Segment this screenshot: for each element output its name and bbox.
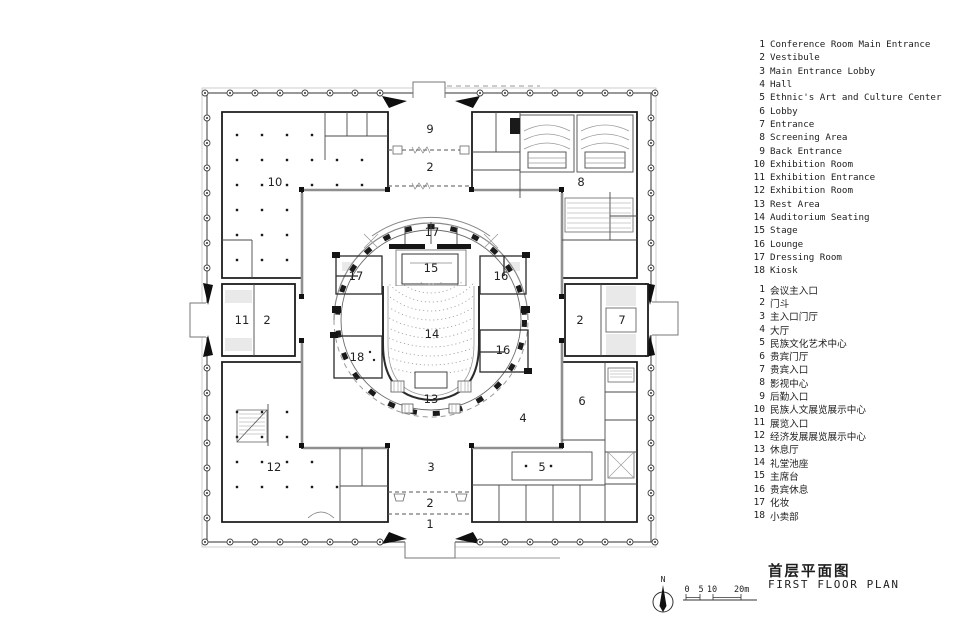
legend-item-label: Entrance	[770, 119, 814, 130]
legend-item-label: 小卖部	[770, 509, 799, 523]
legend-item: 14Auditorium Seating	[748, 211, 941, 224]
column-dot-icon	[554, 92, 556, 94]
legend-item-label: Exhibition Entrance	[770, 172, 875, 183]
column-grid-dot	[236, 159, 238, 161]
legend-item-number: 13	[748, 199, 765, 210]
legend-item-label: Conference Room Main Entrance	[770, 39, 930, 50]
column-grid-dot	[286, 486, 288, 488]
legend-item-label: 主席台	[770, 469, 799, 483]
legend-item-number: 17	[748, 497, 765, 508]
room-number-label: 17	[425, 225, 440, 239]
legend-item-number: 15	[748, 470, 765, 481]
room-number-label: 15	[424, 261, 439, 275]
legend-item: 5民族文化艺术中心	[748, 336, 866, 349]
legend-item-label: 经济发展展览展示中心	[770, 429, 866, 443]
column-grid-dot	[261, 486, 263, 488]
column-dot-icon	[579, 541, 581, 543]
column-dot-icon	[304, 92, 306, 94]
column-dot-icon	[479, 92, 481, 94]
legend-english: 1Conference Room Main Entrance2Vestibule…	[748, 38, 941, 277]
legend-item-label: Vestibule	[770, 52, 820, 63]
legend-item-number: 4	[748, 79, 765, 90]
column-grid-dot	[236, 461, 238, 463]
column-dot-icon	[650, 167, 652, 169]
column-grid-dot	[361, 159, 363, 161]
column-grid-dot	[286, 134, 288, 136]
legend-item-number: 14	[748, 457, 765, 468]
room-number-label: 3	[427, 460, 434, 474]
legend-item-label: 影视中心	[770, 376, 808, 390]
room-number-label: 9	[426, 122, 433, 136]
legend-item-number: 1	[748, 284, 765, 295]
legend-item: 8影视中心	[748, 376, 866, 389]
legend-item-number: 9	[748, 391, 765, 402]
legend-item-label: 休息厅	[770, 442, 799, 456]
room-number-label: 2	[263, 313, 270, 327]
legend-item-label: Ethnic's Art and Culture Center	[770, 92, 941, 103]
column-grid-dot	[286, 234, 288, 236]
legend-item: 1Conference Room Main Entrance	[748, 38, 941, 51]
column-dot-icon	[654, 92, 656, 94]
legend-item-label: Hall	[770, 79, 792, 90]
column-grid-dot	[261, 259, 263, 261]
legend-item-number: 18	[748, 510, 765, 521]
column-dot-icon	[529, 541, 531, 543]
column-grid-dot	[261, 411, 263, 413]
column-dot-icon	[329, 541, 331, 543]
column-dot-icon	[650, 517, 652, 519]
legend-item-label: Rest Area	[770, 199, 820, 210]
column-grid-dot	[286, 259, 288, 261]
room-number-label: 16	[496, 343, 511, 357]
column-dot-icon	[650, 367, 652, 369]
legend-item-number: 3	[748, 66, 765, 77]
legend-item-label: Auditorium Seating	[770, 212, 870, 223]
legend-item-number: 6	[748, 106, 765, 117]
column-grid-dot	[261, 134, 263, 136]
legend-item-number: 12	[748, 430, 765, 441]
legend-item: 9后勤入口	[748, 389, 866, 402]
column-dot-icon	[254, 541, 256, 543]
floor-plan-sheet: 9210817151716112271416181364123521 N 0 5…	[0, 0, 960, 639]
legend-item: 2Vestibule	[748, 51, 941, 64]
column-grid-dot	[236, 411, 238, 413]
column-grid-dot	[261, 461, 263, 463]
column-dot-icon	[206, 492, 208, 494]
column-grid-dot	[311, 184, 313, 186]
column-dot-icon	[279, 92, 281, 94]
legend-item-number: 2	[748, 52, 765, 63]
legend-item-number: 3	[748, 311, 765, 322]
legend-item-label: 民族人文展览展示中心	[770, 402, 866, 416]
column-dot-icon	[329, 92, 331, 94]
column-grid-dot	[286, 411, 288, 413]
column-dot-icon	[206, 117, 208, 119]
column-dot-icon	[654, 541, 656, 543]
column-dot-icon	[279, 541, 281, 543]
column-grid-dot	[311, 461, 313, 463]
legend-item-number: 14	[748, 212, 765, 223]
legend-item: 10Exhibition Room	[748, 158, 941, 171]
column-dot-icon	[650, 417, 652, 419]
column-dot-icon	[650, 442, 652, 444]
column-dot-icon	[604, 92, 606, 94]
column-grid-dot	[236, 486, 238, 488]
legend-item: 17Dressing Room	[748, 251, 941, 264]
legend-item: 6Lobby	[748, 104, 941, 117]
column-grid-dot	[261, 184, 263, 186]
legend-item-label: 贵宾门厅	[770, 349, 808, 363]
svg-text:20m: 20m	[734, 585, 749, 595]
room-number-label: 18	[350, 350, 365, 364]
room-number-label: 2	[426, 160, 433, 174]
column-dot-icon	[650, 192, 652, 194]
room-number-label: 17	[349, 269, 364, 283]
legend-item-number: 5	[748, 92, 765, 103]
legend-item: 15主席台	[748, 469, 866, 482]
legend-item: 15Stage	[748, 224, 941, 237]
column-dot-icon	[254, 92, 256, 94]
column-grid-dot	[336, 159, 338, 161]
legend-item-label: 后勤入口	[770, 389, 808, 403]
legend-item-number: 7	[748, 119, 765, 130]
legend-item-number: 4	[748, 324, 765, 335]
column-grid-dot	[261, 209, 263, 211]
legend-item: 16贵宾休息	[748, 482, 866, 495]
column-dot-icon	[579, 92, 581, 94]
room-number-label: 7	[618, 313, 625, 327]
legend-item-label: Stage	[770, 225, 798, 236]
legend-item: 13休息厅	[748, 443, 866, 456]
column-dot-icon	[504, 92, 506, 94]
legend-item: 17化妆	[748, 496, 866, 509]
legend-item: 18小卖部	[748, 509, 866, 522]
legend-item-number: 1	[748, 39, 765, 50]
room-number-label: 16	[494, 269, 509, 283]
column-grid-dot	[361, 184, 363, 186]
legend-item-label: 主入口门厅	[770, 309, 818, 323]
legend-item-label: 展览入口	[770, 416, 808, 430]
column-dot-icon	[650, 392, 652, 394]
column-grid-dot	[236, 209, 238, 211]
column-dot-icon	[554, 541, 556, 543]
room-number-label: 5	[538, 460, 545, 474]
legend-item-label: Screening Area	[770, 132, 847, 143]
column-dot-icon	[304, 541, 306, 543]
legend-item: 14礼堂池座	[748, 456, 866, 469]
legend-item: 1会议主入口	[748, 283, 866, 296]
room-number-label: 14	[425, 327, 440, 341]
column-grid-dot	[286, 159, 288, 161]
legend-item-label: Main Entrance Lobby	[770, 66, 875, 77]
legend-item-label: Dressing Room	[770, 252, 842, 263]
column-dot-icon	[650, 242, 652, 244]
column-dot-icon	[604, 541, 606, 543]
column-dot-icon	[629, 541, 631, 543]
column-dot-icon	[650, 142, 652, 144]
room-number-label: 10	[268, 175, 283, 189]
column-dot-icon	[529, 92, 531, 94]
legend-item-label: Kiosk	[770, 265, 798, 276]
legend-item: 5Ethnic's Art and Culture Center	[748, 91, 941, 104]
legend-item-label: Lobby	[770, 106, 798, 117]
column-dot-icon	[504, 541, 506, 543]
north-arrow: N	[653, 575, 673, 612]
column-dot-icon	[650, 117, 652, 119]
column-grid-dot	[286, 209, 288, 211]
legend-item: 11展览入口	[748, 416, 866, 429]
legend-item-number: 10	[748, 159, 765, 170]
column-dot-icon	[479, 541, 481, 543]
north-label: N	[661, 575, 666, 584]
legend-item-number: 2	[748, 297, 765, 308]
column-grid-dot	[336, 184, 338, 186]
column-grid-dot	[311, 159, 313, 161]
column-dot-icon	[206, 242, 208, 244]
legend-item: 9Back Entrance	[748, 144, 941, 157]
column-grid-dot	[286, 461, 288, 463]
column-grid-dot	[336, 486, 338, 488]
svg-text:0: 0	[684, 585, 689, 595]
legend-item-label: 大厅	[770, 323, 789, 337]
legend-item-label: 门斗	[770, 296, 789, 310]
column-dot-icon	[206, 417, 208, 419]
column-dot-icon	[650, 267, 652, 269]
column-grid-dot	[286, 184, 288, 186]
column-dot-icon	[229, 541, 231, 543]
room-number-label: 1	[426, 517, 433, 531]
column-dot-icon	[379, 92, 381, 94]
column-dot-icon	[206, 367, 208, 369]
room-number-label: 8	[577, 175, 584, 189]
column-grid-dot	[261, 159, 263, 161]
legend-item-number: 15	[748, 225, 765, 236]
legend-item-number: 6	[748, 351, 765, 362]
column-dot-icon	[206, 142, 208, 144]
svg-text:5: 5	[698, 585, 703, 595]
drawing-title-english: FIRST FLOOR PLAN	[768, 578, 900, 591]
column-dot-icon	[379, 541, 381, 543]
column-dot-icon	[650, 467, 652, 469]
column-grid-dot	[311, 486, 313, 488]
legend-item-number: 10	[748, 404, 765, 415]
legend-item: 13Rest Area	[748, 198, 941, 211]
legend-item-label: Exhibition Room	[770, 159, 853, 170]
column-dot-icon	[206, 467, 208, 469]
room-number-label: 12	[267, 460, 282, 474]
legend-item-number: 13	[748, 444, 765, 455]
column-grid-dot	[311, 134, 313, 136]
legend-item: 2门斗	[748, 296, 866, 309]
column-dot-icon	[206, 167, 208, 169]
column-grid-dot	[261, 436, 263, 438]
column-dot-icon	[354, 541, 356, 543]
legend-item: 12Exhibition Room	[748, 184, 941, 197]
room-number-label: 2	[426, 496, 433, 510]
column-dot-icon	[206, 267, 208, 269]
column-grid-dot	[525, 465, 527, 467]
legend-item: 8Screening Area	[748, 131, 941, 144]
column-grid-dot	[236, 259, 238, 261]
column-dot-icon	[354, 92, 356, 94]
room-number-label: 2	[576, 313, 583, 327]
column-dot-icon	[650, 217, 652, 219]
room-number-label: 11	[235, 313, 250, 327]
legend-item-label: 民族文化艺术中心	[770, 336, 847, 350]
legend-item-label: 贵宾休息	[770, 482, 808, 496]
legend-item: 18Kiosk	[748, 264, 941, 277]
svg-text:10: 10	[707, 585, 717, 595]
legend-item-number: 12	[748, 185, 765, 196]
legend-item: 16Lounge	[748, 237, 941, 250]
legend-item-label: Lounge	[770, 239, 803, 250]
legend-item-number: 17	[748, 252, 765, 263]
column-dot-icon	[204, 92, 206, 94]
legend-item: 7贵宾入口	[748, 363, 866, 376]
room-number-label: 4	[519, 411, 526, 425]
column-grid-dot	[550, 465, 552, 467]
column-dot-icon	[206, 517, 208, 519]
legend-item-label: Exhibition Room	[770, 185, 853, 196]
legend-item: 10民族人文展览展示中心	[748, 403, 866, 416]
legend-item: 7Entrance	[748, 118, 941, 131]
legend-item: 3Main Entrance Lobby	[748, 65, 941, 78]
legend-item-number: 9	[748, 146, 765, 157]
column-grid-dot	[236, 234, 238, 236]
legend-item: 3主入口门厅	[748, 310, 866, 323]
legend-item: 6贵宾门厅	[748, 349, 866, 362]
legend-item: 11Exhibition Entrance	[748, 171, 941, 184]
legend-item: 4大厅	[748, 323, 866, 336]
legend-item-number: 8	[748, 132, 765, 143]
column-dot-icon	[206, 217, 208, 219]
legend-item-label: 礼堂池座	[770, 456, 808, 470]
legend-item-number: 11	[748, 172, 765, 183]
legend-item-number: 16	[748, 239, 765, 250]
legend-item: 12经济发展展览展示中心	[748, 429, 866, 442]
legend-item-number: 18	[748, 265, 765, 276]
control-booth	[415, 372, 447, 388]
column-dot-icon	[206, 392, 208, 394]
column-dot-icon	[229, 92, 231, 94]
legend-item-label: 化妆	[770, 495, 789, 509]
column-grid-dot	[261, 234, 263, 236]
column-dot-icon	[650, 492, 652, 494]
room-number-label: 13	[424, 392, 439, 406]
legend-item-label: Back Entrance	[770, 146, 842, 157]
scale-labels: 0 5 10 20m	[684, 585, 749, 595]
legend-item-number: 7	[748, 364, 765, 375]
legend-chinese: 1会议主入口2门斗3主入口门厅4大厅5民族文化艺术中心6贵宾门厅7贵宾入口8影视…	[748, 283, 866, 522]
legend-item-number: 8	[748, 377, 765, 388]
room-number-label: 6	[578, 394, 585, 408]
column-dot-icon	[206, 442, 208, 444]
column-grid-dot	[236, 436, 238, 438]
column-dot-icon	[206, 192, 208, 194]
legend-item-label: 贵宾入口	[770, 362, 808, 376]
column-grid-dot	[236, 134, 238, 136]
column-grid-dot	[286, 436, 288, 438]
column-grid-dot	[236, 184, 238, 186]
legend-item-label: 会议主入口	[770, 283, 818, 297]
legend-item-number: 16	[748, 484, 765, 495]
legend-item-number: 5	[748, 337, 765, 348]
legend-item: 4Hall	[748, 78, 941, 91]
column-dot-icon	[629, 92, 631, 94]
column-dot-icon	[204, 541, 206, 543]
legend-item-number: 11	[748, 417, 765, 428]
